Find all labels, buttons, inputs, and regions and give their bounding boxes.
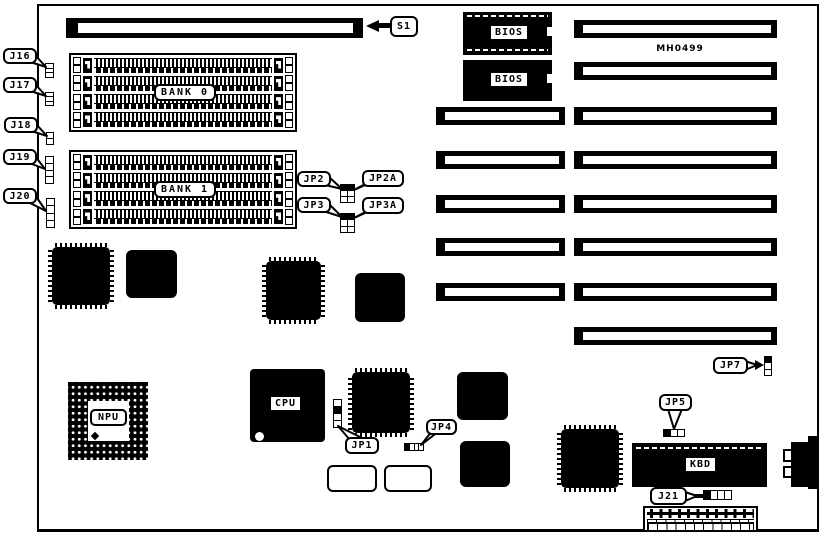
isa-slot: [574, 238, 777, 256]
simm-latch-icon: [83, 112, 92, 127]
simm-endcap: [73, 172, 81, 188]
isa-slot-ext: [436, 283, 565, 301]
isa-slot-stripe: [583, 243, 771, 251]
ic-chip: [460, 441, 510, 487]
jp2-callout: JP2: [297, 171, 331, 187]
jp3a-callout: JP3A: [362, 197, 404, 214]
jp1-jumper: [333, 399, 342, 428]
j18-header: [46, 132, 54, 145]
jp5-callout: JP5: [659, 394, 692, 411]
npu-label: NPU: [90, 409, 127, 426]
crystal-oscillator: [327, 465, 377, 492]
simm-endcap: [73, 94, 81, 110]
simm-slot: [72, 56, 294, 74]
simm-endcap: [73, 57, 81, 73]
qfp-chip: [262, 257, 325, 324]
jp3-callout: JP3: [297, 197, 331, 213]
simm-endcap: [285, 191, 293, 207]
j17-callout: J17: [3, 77, 37, 93]
simm-endcap: [73, 209, 81, 225]
isa-slot-stripe: [445, 288, 559, 296]
kbd-socket-dash: [636, 447, 763, 449]
simm-latch-icon: [83, 173, 92, 188]
simm-latch-icon: [83, 209, 92, 224]
simm-endcap: [73, 154, 81, 170]
simm-latch-icon: [83, 94, 92, 109]
simm-endcap: [285, 94, 293, 110]
isa-slot: [574, 62, 777, 80]
isa-slot-stripe: [445, 243, 559, 251]
simm-latch-icon: [83, 58, 92, 73]
bank1-label: BANK 1: [154, 181, 216, 198]
isa-slot-ext: [436, 151, 565, 169]
cpu-label: CPU: [271, 397, 300, 410]
isa-slot-ext: [436, 195, 565, 213]
motherboard-diagram: BANK 0 BANK 1 BIOS BIOS MH0499: [0, 0, 824, 543]
simm-latch-icon: [274, 155, 283, 170]
isa-slot: [574, 327, 777, 345]
isa-slot-stripe: [583, 200, 771, 208]
bios-notch: [547, 27, 552, 36]
jp7-callout: JP7: [713, 357, 748, 374]
jp7-jumper: [764, 356, 772, 376]
isa-slot-stripe: [583, 112, 771, 120]
isa-slot: [574, 283, 777, 301]
kbd-chip: KBD: [632, 443, 767, 487]
simm-latch-icon: [274, 112, 283, 127]
simm-bank-0: BANK 0: [69, 53, 297, 132]
simm-endcap: [285, 172, 293, 188]
jp2a-callout: JP2A: [362, 170, 404, 187]
isa-slot-stripe: [445, 200, 559, 208]
simm-endcap: [285, 154, 293, 170]
simm-endcap: [285, 112, 293, 128]
isa-slot-stripe: [583, 25, 771, 33]
j18-callout: J18: [4, 117, 38, 133]
simm-pins: [94, 209, 272, 224]
bios-chip-top: BIOS: [463, 12, 552, 55]
isa-slot: [574, 107, 777, 125]
bios-chip-bottom: BIOS: [463, 60, 552, 101]
bios-bottom-label: BIOS: [490, 72, 528, 87]
jp4-callout: JP4: [426, 419, 457, 435]
j16-callout: J16: [3, 48, 37, 64]
cpu-pin1-marker: [255, 432, 264, 441]
simm-pins: [94, 58, 272, 73]
simm-latch-icon: [274, 191, 283, 206]
jp3-jp3a-jumpers: [340, 213, 355, 233]
simm-latch-icon: [274, 209, 283, 224]
j19-callout: J19: [3, 149, 37, 165]
simm-endcap: [285, 57, 293, 73]
isa-slot-stripe: [445, 156, 559, 164]
npu-socket: NPU: [68, 382, 148, 460]
bios-top-label: BIOS: [490, 25, 528, 40]
jp2-jp2a-jumpers: [340, 184, 355, 203]
isa-slot-stripe: [583, 156, 771, 164]
isa-slot-stripe: [583, 288, 771, 296]
simm-latch-icon: [274, 173, 283, 188]
simm-latch-icon: [274, 94, 283, 109]
j19-header: [45, 156, 54, 184]
ic-chip: [355, 273, 405, 322]
isa-slot-ext: [436, 238, 565, 256]
isa-slot: [574, 20, 777, 38]
simm-endcap: [285, 209, 293, 225]
simm-latch-icon: [274, 76, 283, 91]
isa-slot-stripe: [583, 332, 771, 340]
part-number-text: MH0499: [640, 44, 720, 54]
simm-latch-icon: [83, 191, 92, 206]
simm-slot: [72, 111, 294, 129]
keyboard-din-connector: [783, 436, 820, 489]
jp5-jumper: [663, 429, 685, 437]
isa-slot-stripe: [445, 112, 559, 120]
j21-callout: J21: [650, 487, 687, 505]
simm-latch-icon: [83, 76, 92, 91]
bios-notch: [547, 74, 552, 83]
j17-header: [45, 92, 54, 106]
isa-slot-stripe: [583, 67, 771, 75]
bank0-label: BANK 0: [154, 84, 216, 101]
j21-header: [703, 490, 732, 500]
simm-pins: [94, 155, 272, 170]
bios-socket-dash: [467, 49, 548, 51]
simm-endcap: [285, 75, 293, 91]
simm-slot: [72, 208, 294, 226]
jp4-jumper: [404, 443, 424, 451]
s1-slot-stripe: [78, 23, 353, 33]
qfp-chip: [348, 368, 414, 437]
ic-chip: [126, 250, 177, 298]
j20-header: [46, 198, 55, 228]
crystal-oscillator: [384, 465, 432, 492]
qfp-chip: [557, 425, 623, 492]
simm-endcap: [73, 112, 81, 128]
s1-edge-slot: [66, 18, 363, 38]
kbd-label: KBD: [685, 457, 716, 472]
cpu-chip: CPU: [250, 369, 325, 442]
simm-latch-icon: [274, 58, 283, 73]
power-connector: [643, 506, 758, 532]
isa-slot: [574, 195, 777, 213]
bios-socket-dash: [467, 15, 548, 17]
ic-chip: [457, 372, 508, 420]
isa-slot-ext: [436, 107, 565, 125]
jp1-callout: JP1: [345, 437, 379, 454]
simm-endcap: [73, 75, 81, 91]
s1-callout: S1: [390, 16, 418, 37]
qfp-chip: [48, 243, 114, 309]
isa-slot: [574, 151, 777, 169]
power-socket-row: [647, 523, 754, 531]
j20-callout: J20: [3, 188, 37, 204]
simm-latch-icon: [83, 155, 92, 170]
simm-bank-1: BANK 1: [69, 150, 297, 229]
simm-slot: [72, 153, 294, 171]
simm-endcap: [73, 191, 81, 207]
simm-pins: [94, 112, 272, 127]
power-pins-row: [647, 509, 754, 518]
j16-header: [45, 63, 54, 78]
